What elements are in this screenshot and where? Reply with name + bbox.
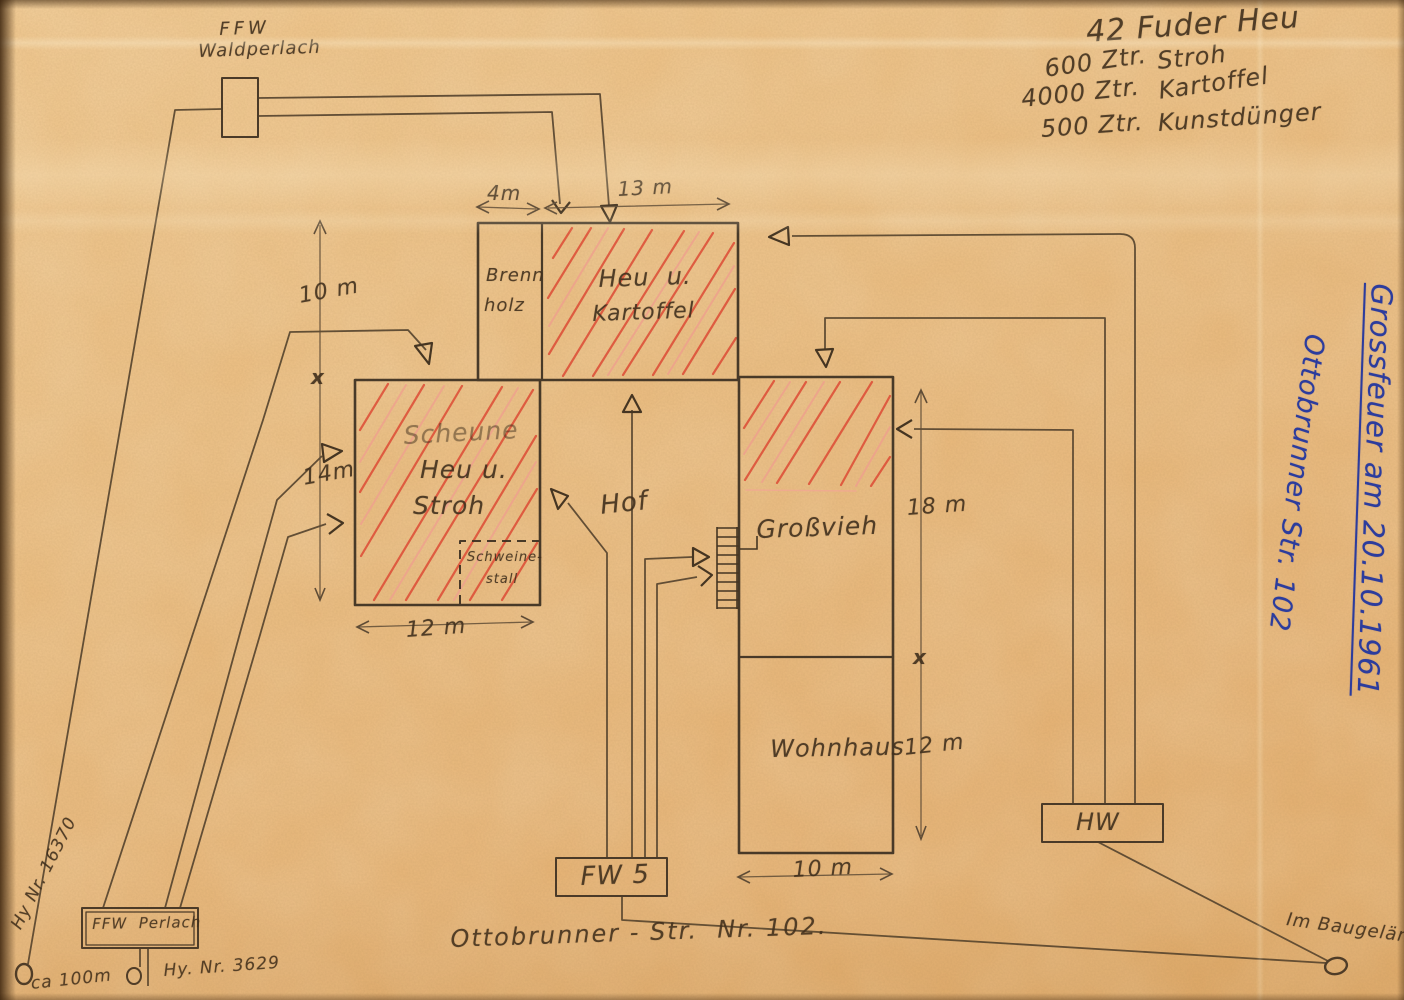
heu-kartoffel-label-line1: Heu u. bbox=[598, 263, 692, 294]
plan-drawing bbox=[0, 0, 1404, 1000]
brennholz-label-line2: holz bbox=[484, 296, 525, 317]
measure-12m-scheune: 12 m bbox=[405, 614, 467, 643]
hof-label: Hof bbox=[599, 487, 649, 522]
measure-x-right: x bbox=[913, 646, 927, 669]
measure-18m: 18 m bbox=[906, 492, 968, 521]
ffw-waldperlach-label-line2: Waldperlach bbox=[198, 38, 321, 63]
hw-label: HW bbox=[1076, 809, 1120, 837]
ffw-perlach-label: FFW Perlach bbox=[92, 914, 201, 933]
measure-4m: 4m bbox=[487, 182, 521, 205]
paper-grain-texture bbox=[0, 0, 1404, 1000]
measure-10m-bottom: 10 m bbox=[792, 855, 854, 883]
measure-13m: 13 m bbox=[617, 175, 673, 201]
schweinestall-label-line2: stall bbox=[486, 573, 518, 588]
scheune-label-line3: Stroh bbox=[413, 492, 485, 521]
scanned-fire-plan: FFW Waldperlach FFW Perlach FW 5 HW 42 F… bbox=[0, 0, 1404, 1000]
grossvieh-label: Großvieh bbox=[756, 512, 879, 545]
brennholz-label-line1: Brenn bbox=[486, 266, 545, 287]
measure-x-left: x bbox=[311, 366, 325, 389]
scheune-label-line1: Scheune bbox=[403, 416, 519, 451]
scheune-label-line2: Heu u. bbox=[420, 456, 508, 485]
ffw-waldperlach-label-line1: FFW bbox=[219, 18, 270, 40]
heu-kartoffel-label-line2: Kartoffel bbox=[592, 298, 695, 327]
wohnhaus-label: Wohnhaus bbox=[770, 734, 905, 764]
fw5-label: FW 5 bbox=[580, 861, 650, 893]
schweinestall-label-line1: Schweine- bbox=[467, 551, 543, 566]
